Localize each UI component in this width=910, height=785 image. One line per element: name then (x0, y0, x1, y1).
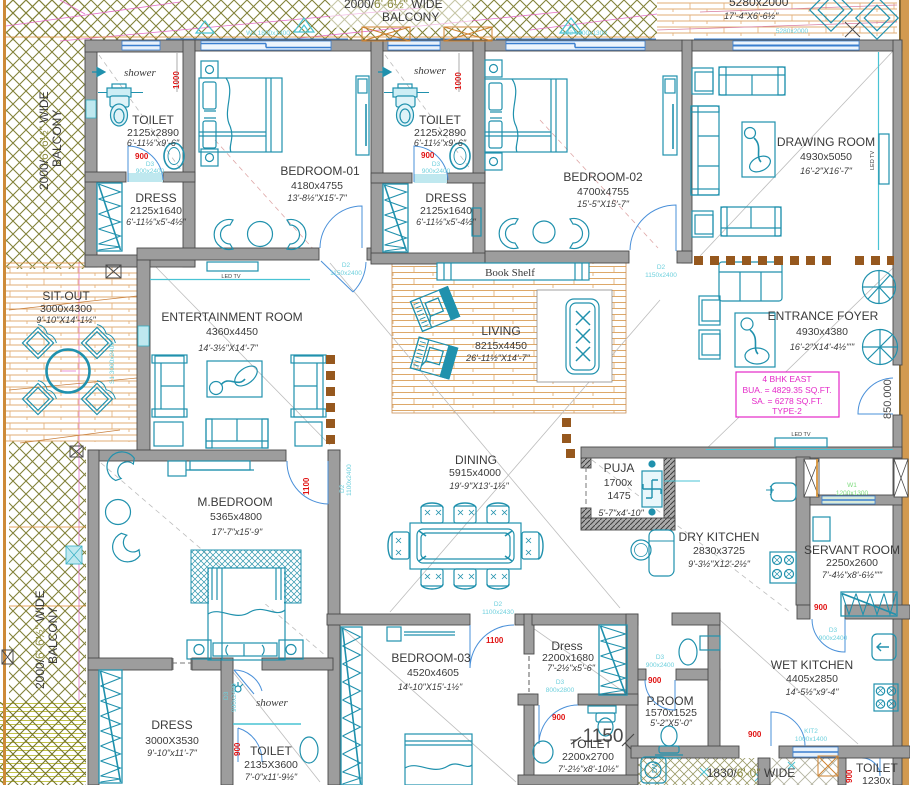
svg-text:5280x2000: 5280x2000 (776, 28, 809, 35)
svg-text:14'-5½"x9'-4": 14'-5½"x9'-4" (786, 687, 840, 697)
svg-text:DRESS: DRESS (425, 191, 466, 205)
svg-text:D3: D3 (146, 161, 155, 168)
svg-text:1150x2400: 1150x2400 (330, 270, 362, 277)
svg-text:26'-11½"X14'-7": 26'-11½"X14'-7" (465, 353, 531, 363)
svg-text:900x2400: 900x2400 (231, 683, 238, 712)
svg-text:1700x: 1700x (604, 477, 633, 489)
svg-text:5365x4800: 5365x4800 (210, 511, 262, 523)
svg-text:900: 900 (552, 713, 566, 722)
svg-text:shower: shower (414, 65, 447, 77)
svg-text:1200x1300: 1200x1300 (836, 490, 869, 497)
svg-text:DRAWING ROOM: DRAWING ROOM (777, 135, 875, 149)
svg-text:4180x4755: 4180x4755 (291, 180, 343, 192)
svg-text:13'-8½"X15'-7": 13'-8½"X15'-7" (287, 193, 347, 203)
svg-text:W2 1800x1300: W2 1800x1300 (563, 30, 607, 37)
svg-text:14'-10"X15'-1½": 14'-10"X15'-1½" (398, 682, 463, 692)
svg-text:Book Shelf: Book Shelf (485, 267, 535, 279)
svg-text:D2: D2 (657, 264, 666, 271)
svg-text:4520x4605: 4520x4605 (407, 667, 459, 679)
svg-text:D3: D3 (223, 691, 230, 700)
svg-text:1100: 1100 (486, 636, 504, 645)
svg-text:1100: 1100 (302, 477, 311, 495)
svg-text:2200x2700: 2200x2700 (562, 751, 614, 763)
svg-text:2250x2600: 2250x2600 (826, 557, 878, 569)
svg-text:900: 900 (421, 151, 435, 160)
svg-text:WET KITCHEN: WET KITCHEN (771, 658, 853, 672)
svg-text:W2 1800x1300: W2 1800x1300 (246, 30, 290, 37)
svg-text:900: 900 (648, 676, 662, 685)
svg-text:1000: 1000 (454, 72, 463, 90)
svg-text:BALCONY: BALCONY (382, 10, 439, 24)
svg-text:D2: D2 (339, 484, 346, 493)
svg-text:SERVANT ROOM: SERVANT ROOM (804, 543, 900, 557)
svg-text:17'-7"x15'-9": 17'-7"x15'-9" (212, 527, 263, 537)
svg-text:TOILET: TOILET (419, 113, 461, 127)
svg-text:ENTERTAINMENT ROOM: ENTERTAINMENT ROOM (161, 310, 302, 324)
svg-text:LED TV: LED TV (870, 151, 876, 170)
svg-text:KIT2: KIT2 (804, 728, 818, 735)
svg-text:1000: 1000 (172, 71, 181, 89)
svg-text:2830x3725: 2830x3725 (693, 545, 745, 557)
svg-text:5915x4000: 5915x4000 (449, 467, 501, 479)
svg-text:TOILET: TOILET (856, 761, 898, 775)
svg-text:6'-11½"x9'-6": 6'-11½"x9'-6" (127, 138, 180, 148)
svg-text:15'-5"X15'-7": 15'-5"X15'-7" (577, 199, 630, 209)
svg-text:DINING: DINING (455, 453, 497, 467)
svg-text:6'-11½"x5'-4½": 6'-11½"x5'-4½" (126, 217, 186, 227)
svg-text:TYPE-2: TYPE-2 (772, 406, 802, 416)
svg-text:4930x5050: 4930x5050 (800, 151, 852, 163)
svg-text:2125x1640: 2125x1640 (130, 205, 182, 217)
svg-text:ENTRANCE FOYER: ENTRANCE FOYER (768, 309, 879, 323)
svg-text:6'-11½"x5'-4½": 6'-11½"x5'-4½" (416, 217, 476, 227)
svg-text:7'-4½"x8'-6½"'": 7'-4½"x8'-6½"'" (822, 570, 883, 580)
svg-text:6'-11½"x9'-6": 6'-11½"x9'-6" (414, 138, 467, 148)
svg-text:4360x4450: 4360x4450 (206, 326, 258, 338)
svg-text:BEDROOM-03: BEDROOM-03 (391, 651, 471, 665)
svg-text:P.ROOM: P.ROOM (646, 694, 693, 708)
svg-text:800x2800: 800x2800 (546, 687, 575, 694)
svg-text:D3: D3 (556, 679, 565, 686)
svg-text:1230x: 1230x (862, 775, 891, 785)
svg-text:D2: D2 (342, 262, 351, 269)
svg-text:16'-2"X14'-4½"'": 16'-2"X14'-4½"'" (790, 342, 855, 352)
svg-text:D2: D2 (494, 601, 503, 608)
svg-text:DRESS: DRESS (151, 718, 192, 732)
svg-text:900: 900 (814, 603, 828, 612)
svg-text:1100x2430: 1100x2430 (482, 609, 514, 616)
svg-text:SA. = 6278 SQ.FT.: SA. = 6278 SQ.FT. (751, 396, 822, 406)
svg-text:TOILET: TOILET (132, 113, 174, 127)
svg-text:4 BHK EAST: 4 BHK EAST (762, 374, 811, 384)
svg-text:M.BEDROOM: M.BEDROOM (197, 495, 272, 509)
svg-text:S1 3000x2400: S1 3000x2400 (109, 342, 116, 384)
svg-text:D3: D3 (829, 627, 838, 634)
svg-text:BALCONY: BALCONY (50, 110, 64, 167)
svg-text:900x2400: 900x2400 (422, 168, 451, 175)
svg-text:1830/6'-0" WIDE: 1830/6'-0" WIDE (707, 766, 796, 780)
svg-text:2135X3600: 2135X3600 (244, 759, 298, 771)
svg-text:9'-3½"X12'-2½": 9'-3½"X12'-2½" (688, 559, 751, 569)
svg-text:5'-2"X5'-0": 5'-2"X5'-0" (650, 718, 693, 728)
svg-text:Dress: Dress (551, 639, 582, 653)
svg-text:2125x1640: 2125x1640 (420, 205, 472, 217)
svg-text:LED TV: LED TV (221, 274, 240, 280)
svg-text:7'-0"x11'-9½": 7'-0"x11'-9½" (245, 772, 298, 782)
svg-text:7'-2½"x5'-6": 7'-2½"x5'-6" (547, 663, 596, 673)
svg-text:1000x1400: 1000x1400 (795, 736, 828, 743)
svg-text:850.000: 850.000 (882, 379, 894, 419)
svg-text:D3: D3 (432, 161, 441, 168)
svg-text:1100x2400: 1100x2400 (346, 464, 353, 496)
svg-text:900: 900 (135, 152, 149, 161)
svg-text:DRESS: DRESS (135, 191, 176, 205)
svg-text:16'-2"X16'-7": 16'-2"X16'-7" (800, 166, 853, 176)
svg-text:shower: shower (256, 697, 289, 709)
svg-text:8215x4450: 8215x4450 (475, 340, 527, 352)
svg-text:9'-10"x11'-7": 9'-10"x11'-7" (147, 748, 197, 758)
svg-text:3000x4300: 3000x4300 (40, 303, 92, 315)
svg-text:900x2400: 900x2400 (646, 662, 675, 669)
svg-text:900: 900 (845, 769, 854, 783)
svg-text:TOILET: TOILET (250, 744, 292, 758)
svg-text:900x2400: 900x2400 (819, 635, 848, 642)
svg-text:19'-9"X13'-1½": 19'-9"X13'-1½" (449, 481, 509, 491)
svg-text:4700x4755: 4700x4755 (577, 186, 629, 198)
svg-text:2000/6'-6½" WIDE: 2000/6'-6½" WIDE (33, 590, 47, 689)
svg-text:DW: DW (652, 761, 659, 773)
svg-text:5280x2000: 5280x2000 (729, 0, 789, 9)
svg-text:W1: W1 (847, 482, 857, 489)
svg-text:1475: 1475 (607, 490, 631, 502)
svg-text:PUJA: PUJA (604, 461, 635, 475)
svg-text:900x2400: 900x2400 (136, 168, 165, 175)
svg-text:900: 900 (748, 730, 762, 739)
svg-text:5'-7"x4'-10": 5'-7"x4'-10" (598, 508, 644, 518)
svg-text:4930x4380: 4930x4380 (796, 326, 848, 338)
svg-text:900: 900 (233, 742, 242, 756)
svg-text:TOILET: TOILET (570, 737, 612, 751)
svg-text:BUA. = 4829.35 SQ.FT.: BUA. = 4829.35 SQ.FT. (742, 385, 831, 395)
svg-text:D3: D3 (656, 654, 665, 661)
svg-text:17'-4"X6'-6½": 17'-4"X6'-6½" (724, 11, 779, 21)
svg-text:1150x2400: 1150x2400 (645, 272, 677, 279)
svg-text:9'-10"X14'-1½": 9'-10"X14'-1½" (36, 315, 96, 325)
svg-text:shower: shower (124, 67, 157, 79)
svg-text:SIT-OUT: SIT-OUT (42, 289, 90, 303)
svg-text:3000X3530: 3000X3530 (145, 735, 199, 747)
svg-text:BEDROOM-02: BEDROOM-02 (563, 170, 643, 184)
svg-text:7'-2½"x8'-10½": 7'-2½"x8'-10½" (558, 764, 619, 774)
svg-text:14'-3½"X14'-7": 14'-3½"X14'-7" (198, 343, 258, 353)
svg-text:DRY KITCHEN: DRY KITCHEN (679, 530, 760, 544)
svg-text:BALCONY: BALCONY (46, 607, 60, 664)
svg-text:4405x2850: 4405x2850 (786, 673, 838, 685)
svg-text:LED TV: LED TV (791, 432, 810, 438)
svg-text:LIVING: LIVING (481, 324, 520, 338)
svg-text:BEDROOM-01: BEDROOM-01 (280, 164, 360, 178)
svg-text:2000/6'-6½" WIDE: 2000/6'-6½" WIDE (37, 91, 51, 190)
